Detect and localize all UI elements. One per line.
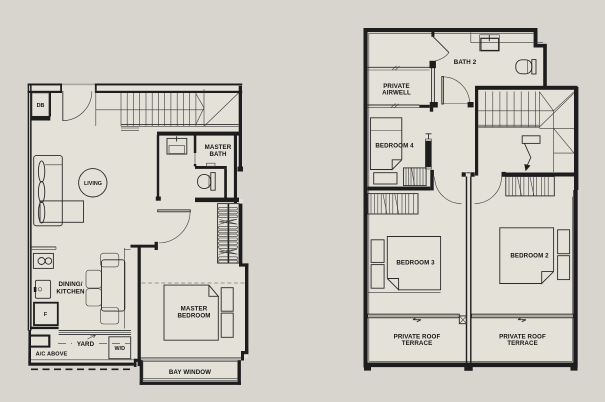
svg-text:BATH 2: BATH 2 [454,59,477,66]
svg-text:MASTER: MASTER [205,144,232,151]
svg-text:BATH: BATH [209,151,227,158]
svg-text:YARD: YARD [77,341,95,348]
svg-text:BEDROOM: BEDROOM [177,313,210,320]
svg-text:AIRWELL: AIRWELL [382,90,411,97]
svg-text:BEDROOM 3: BEDROOM 3 [396,260,435,267]
svg-text:TERRACE: TERRACE [507,340,538,347]
svg-text:BEDROOM 4: BEDROOM 4 [375,142,414,149]
svg-text:A/C ABOVE: A/C ABOVE [36,352,68,358]
svg-text:KITCHEN: KITCHEN [56,289,85,296]
svg-text:BEDROOM 2: BEDROOM 2 [510,253,549,260]
svg-text:TERRACE: TERRACE [402,340,433,347]
svg-text:BAY WINDOW: BAY WINDOW [169,369,211,376]
svg-text:DINING/: DINING/ [58,281,82,288]
svg-text:W/D: W/D [115,346,126,352]
svg-text:MASTER: MASTER [181,306,208,313]
svg-text:LIVING: LIVING [84,181,102,187]
svg-text:DB: DB [37,103,45,109]
